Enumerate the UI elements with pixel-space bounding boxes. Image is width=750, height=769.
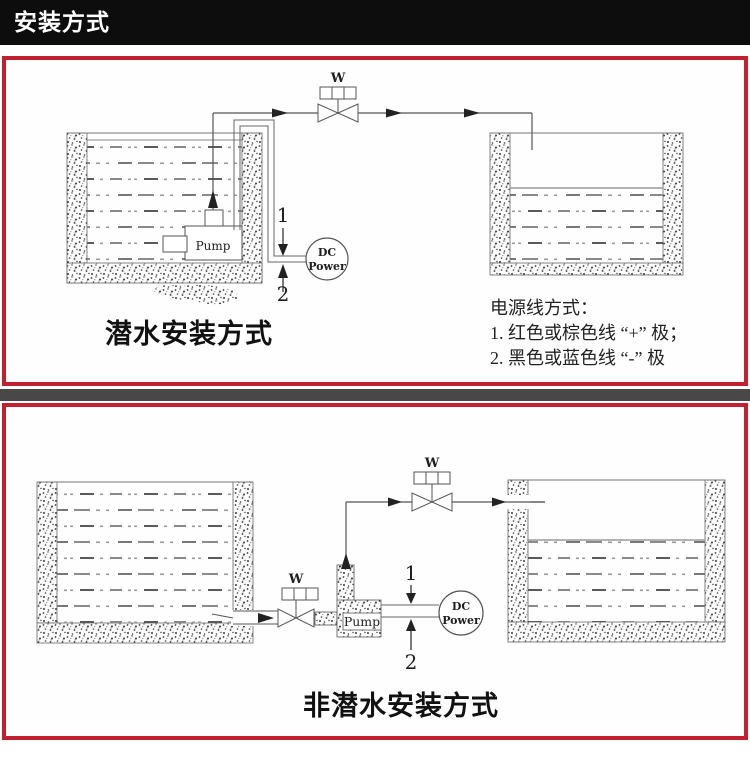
wire-1-label: 1 (405, 561, 418, 585)
valve-body-icon (432, 493, 452, 511)
divider-bar (0, 389, 750, 401)
wire-2-arrowhead-icon (278, 264, 288, 278)
inlet-valve: W (412, 456, 452, 511)
flow-arrow-right-icon (388, 498, 402, 507)
flow-arrow-right-icon (464, 109, 480, 118)
flow-arrow-right-icon (272, 109, 288, 118)
power-wiring-note: 电源线方式： 1. 红色或棕色线 “+” 极； 2. 黑色或蓝色线 “-” 极 (490, 296, 687, 371)
source-tank (37, 482, 253, 643)
valve-handwheel-icon (320, 87, 356, 99)
outlet-valve-label: W (288, 572, 304, 587)
panel-submersible: Pump W DC Powe (2, 56, 748, 386)
power-wires (381, 605, 439, 617)
caption-non-submersible: 非潜水安装方式 (303, 684, 499, 723)
water-fill (528, 541, 705, 622)
outlet-valve: W (278, 572, 318, 627)
header-bar: 安装方式 (0, 0, 750, 45)
note-line-1: 1. 红色或棕色线 “+” 极； (490, 321, 687, 346)
valve-label: W (330, 71, 346, 86)
power-label: Power (308, 260, 346, 273)
dc-label: DC (318, 246, 337, 259)
note-title: 电源线方式： (490, 296, 687, 321)
power-label: Power (442, 614, 480, 627)
valve-handwheel-icon (414, 472, 450, 484)
inlet-valve-label: W (424, 456, 440, 471)
valve: W (318, 71, 358, 122)
panel-non-submersible: W Pump W (2, 403, 748, 740)
caption-submersible: 潜水安装方式 (105, 312, 273, 351)
flow-arrow-right-icon (386, 109, 402, 118)
wire-1-arrowhead-icon (406, 593, 416, 604)
destination-tank (490, 133, 683, 275)
valve-body-icon (338, 104, 358, 122)
page-title: 安装方式 (14, 9, 110, 35)
valve-handwheel-icon (282, 588, 318, 600)
flow-arrow-right-icon (492, 498, 506, 507)
wire-2-label: 2 (405, 650, 418, 674)
flow-arrow-right-icon (258, 613, 274, 623)
pipe-connector (315, 612, 337, 625)
wire-1-arrowhead-icon (278, 244, 288, 256)
surface-pump: Pump (337, 565, 381, 637)
flow-arrow-up-icon (341, 553, 351, 569)
water-fill (510, 190, 663, 262)
dc-power-source: DC Power (439, 591, 483, 635)
pump-label: Pump (196, 239, 231, 253)
wire-2-arrowhead-icon (406, 619, 416, 631)
valve-body-icon (296, 609, 314, 627)
valve-body-icon (412, 493, 432, 511)
valve-body-icon (278, 609, 296, 627)
wire-1-label: 1 (277, 203, 290, 227)
dc-label: DC (452, 600, 471, 613)
note-line-2: 2. 黑色或蓝色线 “-” 极 (490, 346, 687, 371)
water-fill (57, 483, 233, 623)
pump-label: Pump (344, 614, 380, 629)
dc-power-source: DC Power (306, 238, 348, 280)
destination-tank (508, 480, 725, 642)
gravel-patch (152, 285, 238, 305)
valve-body-icon (318, 104, 338, 122)
